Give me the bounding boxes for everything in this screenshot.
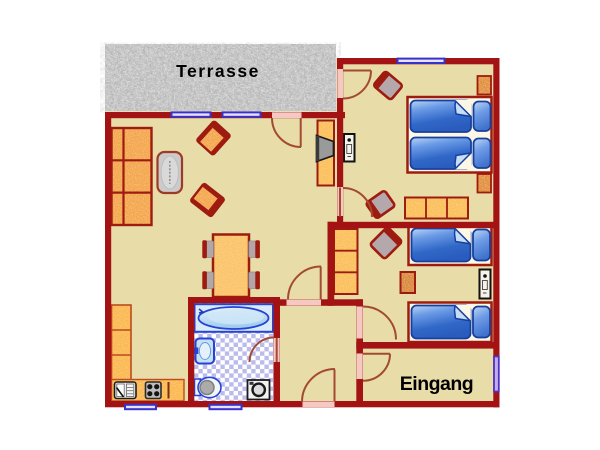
svg-text:Eingang: Eingang bbox=[400, 373, 473, 395]
svg-text:Terrasse: Terrasse bbox=[176, 61, 260, 81]
